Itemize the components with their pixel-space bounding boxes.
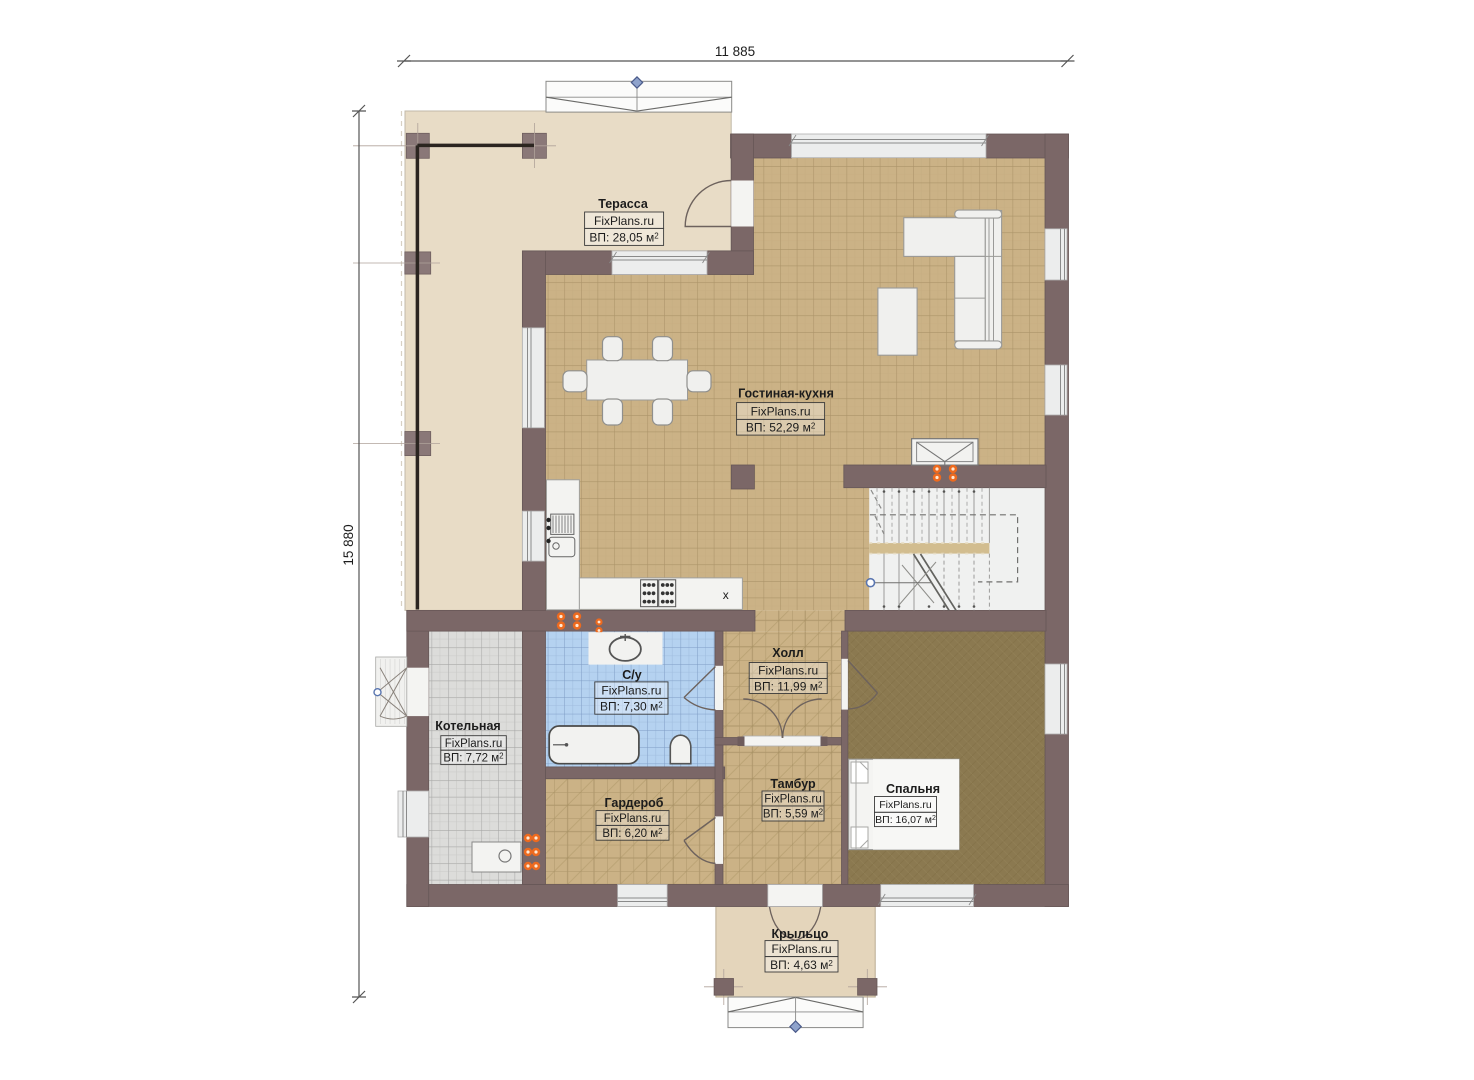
svg-text:Холл: Холл	[772, 646, 803, 660]
svg-text:FixPlans.ru: FixPlans.ru	[601, 683, 661, 697]
svg-text:FixPlans.ru: FixPlans.ru	[764, 794, 822, 806]
svg-text:11 885: 11 885	[715, 44, 755, 59]
svg-text:Тамбур: Тамбур	[770, 777, 816, 791]
svg-text:FixPlans.ru: FixPlans.ru	[879, 799, 932, 811]
svg-text:Терасса: Терасса	[598, 197, 649, 211]
svg-text:FixPlans.ru: FixPlans.ru	[758, 664, 818, 678]
svg-text:Котельная: Котельная	[435, 719, 500, 733]
svg-text:ВП: 4,63 м2: ВП: 4,63 м2	[770, 958, 833, 972]
svg-text:ВП: 16,07 м2: ВП: 16,07 м2	[875, 814, 936, 826]
svg-text:ВП: 11,99 м2: ВП: 11,99 м2	[754, 679, 823, 693]
svg-text:ВП: 7,72 м2: ВП: 7,72 м2	[443, 752, 504, 765]
svg-text:ВП: 7,30 м2: ВП: 7,30 м2	[600, 700, 663, 714]
svg-text:Крыльцо: Крыльцо	[772, 927, 829, 941]
svg-text:ВП: 5,59 м2: ВП: 5,59 м2	[763, 808, 824, 821]
svg-text:FixPlans.ru: FixPlans.ru	[445, 738, 503, 750]
svg-text:FixPlans.ru: FixPlans.ru	[594, 214, 654, 228]
svg-text:Спальня: Спальня	[886, 782, 940, 796]
svg-text:15 880: 15 880	[341, 524, 356, 565]
svg-text:FixPlans.ru: FixPlans.ru	[604, 813, 662, 825]
svg-text:x: x	[723, 588, 729, 602]
svg-text:FixPlans.ru: FixPlans.ru	[771, 942, 831, 956]
svg-text:Гардероб: Гардероб	[604, 796, 663, 810]
svg-text:ВП: 28,05 м2: ВП: 28,05 м2	[589, 231, 659, 245]
svg-text:FixPlans.ru: FixPlans.ru	[751, 405, 811, 419]
svg-text:ВП: 52,29 м2: ВП: 52,29 м2	[746, 421, 816, 435]
svg-text:С/у: С/у	[622, 668, 642, 682]
svg-text:Гостиная-кухня: Гостиная-кухня	[738, 387, 834, 401]
svg-text:ВП: 6,20 м2: ВП: 6,20 м2	[602, 827, 663, 840]
